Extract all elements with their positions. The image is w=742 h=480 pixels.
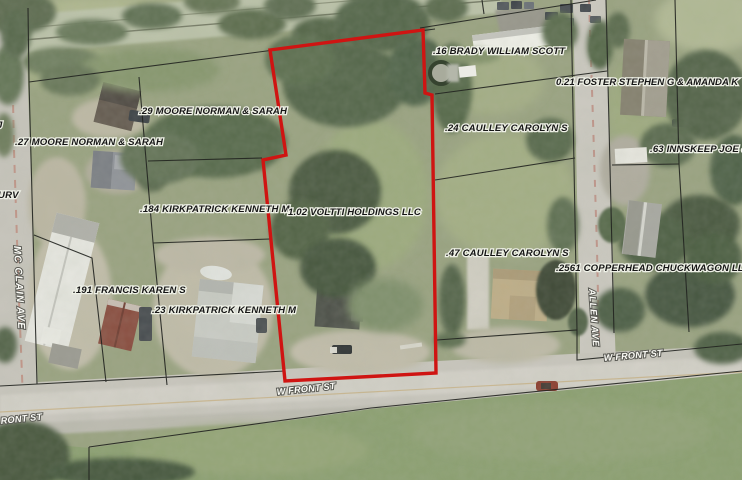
svg-text:.27 MOORE NORMAN & SARAH: .27 MOORE NORMAN & SARAH	[15, 137, 164, 148]
svg-text:.29 MOORE NORMAN & SARAH: .29 MOORE NORMAN & SARAH	[139, 106, 288, 117]
svg-text:.184 KIRKPATRICK KENNETH M: .184 KIRKPATRICK KENNETH M	[140, 204, 290, 215]
svg-text:.16 BRADY WILLIAM SCOTT: .16 BRADY WILLIAM SCOTT	[433, 46, 566, 57]
svg-text:.63 INNSKEEP JOE & S: .63 INNSKEEP JOE & S	[650, 144, 742, 155]
svg-text:URV: URV	[0, 190, 20, 201]
svg-text:.23 KIRKPATRICK KENNETH M: .23 KIRKPATRICK KENNETH M	[152, 305, 297, 316]
svg-text:.191 FRANCIS KAREN S: .191 FRANCIS KAREN S	[73, 285, 186, 296]
svg-text:.47 CAULLEY CAROLYN S: .47 CAULLEY CAROLYN S	[446, 248, 569, 259]
svg-text:.2561 COPPERHEAD CHUCKWAGON L: .2561 COPPERHEAD CHUCKWAGON LLC	[556, 263, 742, 274]
svg-text:1.02 VOLTTI HOLDINGS LLC: 1.02 VOLTTI HOLDINGS LLC	[288, 207, 422, 218]
svg-text:.24 CAULLEY CAROLYN S: .24 CAULLEY CAROLYN S	[445, 123, 568, 134]
svg-text:0.21 FOSTER STEPHEN G & AMAND: 0.21 FOSTER STEPHEN G & AMANDA K	[556, 77, 739, 88]
